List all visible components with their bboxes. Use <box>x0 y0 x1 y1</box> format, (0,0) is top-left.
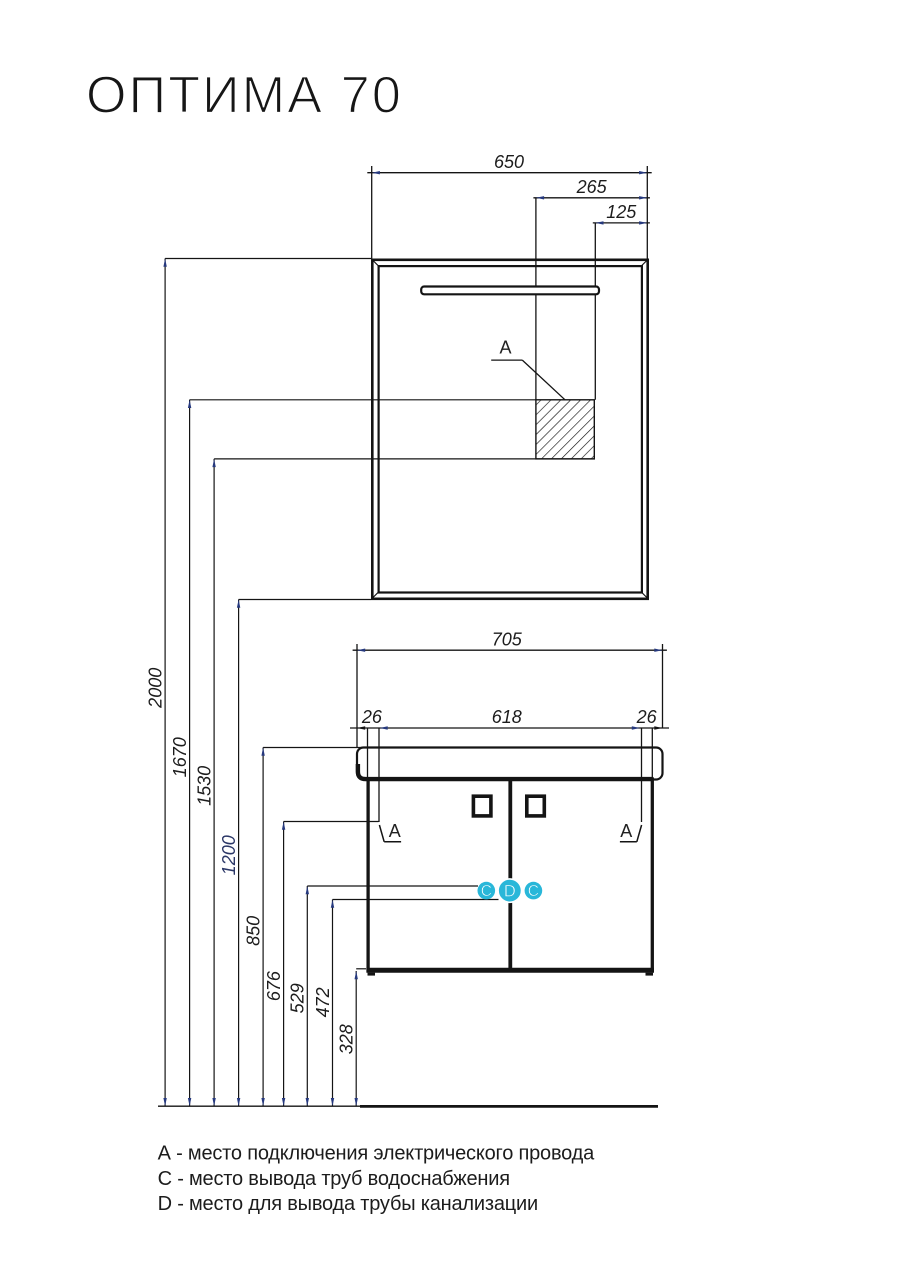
svg-text:А - место подключения электрич: А - место подключения электрического про… <box>158 1142 596 1164</box>
svg-text:472: 472 <box>313 987 333 1017</box>
svg-text:650: 650 <box>494 152 524 172</box>
svg-text:2000: 2000 <box>146 668 166 709</box>
svg-text:ОПТИМА 70: ОПТИМА 70 <box>86 67 403 125</box>
svg-text:676: 676 <box>264 970 284 1001</box>
svg-text:26: 26 <box>361 707 383 727</box>
svg-text:529: 529 <box>288 983 308 1013</box>
svg-text:C: C <box>528 883 539 900</box>
svg-text:265: 265 <box>576 177 608 197</box>
svg-text:328: 328 <box>337 1024 357 1054</box>
svg-text:D: D <box>504 883 516 901</box>
svg-text:1670: 1670 <box>170 737 190 777</box>
svg-text:C: C <box>481 883 492 900</box>
svg-text:705: 705 <box>492 630 523 650</box>
svg-text:125: 125 <box>606 202 637 222</box>
svg-text:618: 618 <box>492 707 522 727</box>
svg-text:26: 26 <box>636 707 658 727</box>
svg-text:1530: 1530 <box>195 766 215 806</box>
svg-text:С - место вывода труб водоснаб: С - место вывода труб водоснабжения <box>158 1168 510 1190</box>
svg-text:850: 850 <box>244 916 264 946</box>
svg-text:A: A <box>389 821 401 841</box>
svg-text:D - место для вывода трубы кан: D - место для вывода трубы канализации <box>158 1193 538 1215</box>
svg-text:1200: 1200 <box>219 835 239 875</box>
svg-text:A: A <box>499 338 511 358</box>
svg-text:A: A <box>620 821 632 841</box>
